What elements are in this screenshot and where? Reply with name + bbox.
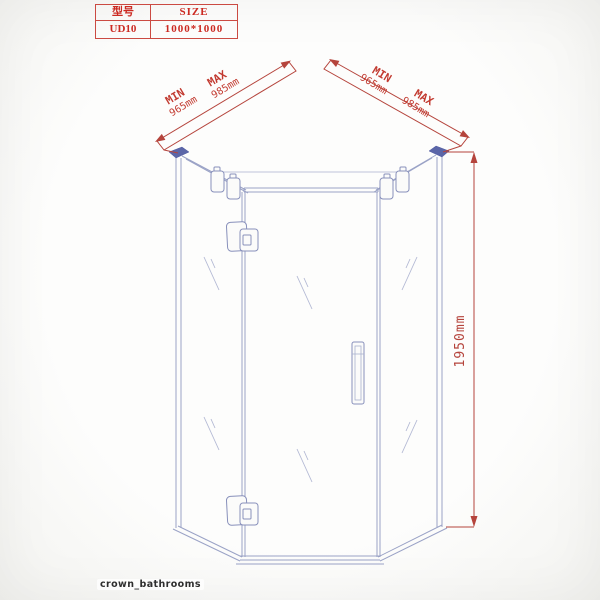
height-dimension-value: 1950mm xyxy=(453,315,468,368)
arrowhead xyxy=(460,130,470,138)
right-wall-dimension: MIN 965mm MAX 985mm xyxy=(324,59,470,152)
right-wall-post xyxy=(429,146,449,527)
watermark: crown_bathrooms xyxy=(97,579,204,590)
blueprint-canvas: 型号 SIZE UD10 1000*1000 xyxy=(0,0,600,600)
arrowhead xyxy=(329,59,339,67)
arrowhead xyxy=(155,134,165,142)
shower-enclosure-drawing: MIN 965mm MAX 985mm MIN 965mm MAX 985mm xyxy=(0,0,600,600)
arrowhead xyxy=(281,61,291,69)
door-hinge-bottom-icon xyxy=(226,495,258,525)
glass-reflection xyxy=(297,449,312,482)
glass-reflection xyxy=(297,276,312,309)
height-dimension: 1950mm xyxy=(446,152,478,527)
arrowhead xyxy=(471,516,478,527)
left-wall-dimension: MIN 965mm MAX 985mm xyxy=(155,61,296,154)
glass-reflection xyxy=(402,420,417,453)
enclosure-frame xyxy=(169,146,449,564)
left-wall-post xyxy=(169,147,189,528)
arrowhead xyxy=(471,152,478,163)
bottom-frame xyxy=(173,525,447,564)
glass-reflection xyxy=(204,417,219,450)
glass-reflection xyxy=(204,257,219,290)
glass-reflection-marks xyxy=(204,257,417,482)
glass-reflection xyxy=(402,257,417,290)
door-hinge-top-icon xyxy=(226,221,258,251)
left-post-cap xyxy=(169,147,189,158)
door-handle xyxy=(352,342,364,404)
